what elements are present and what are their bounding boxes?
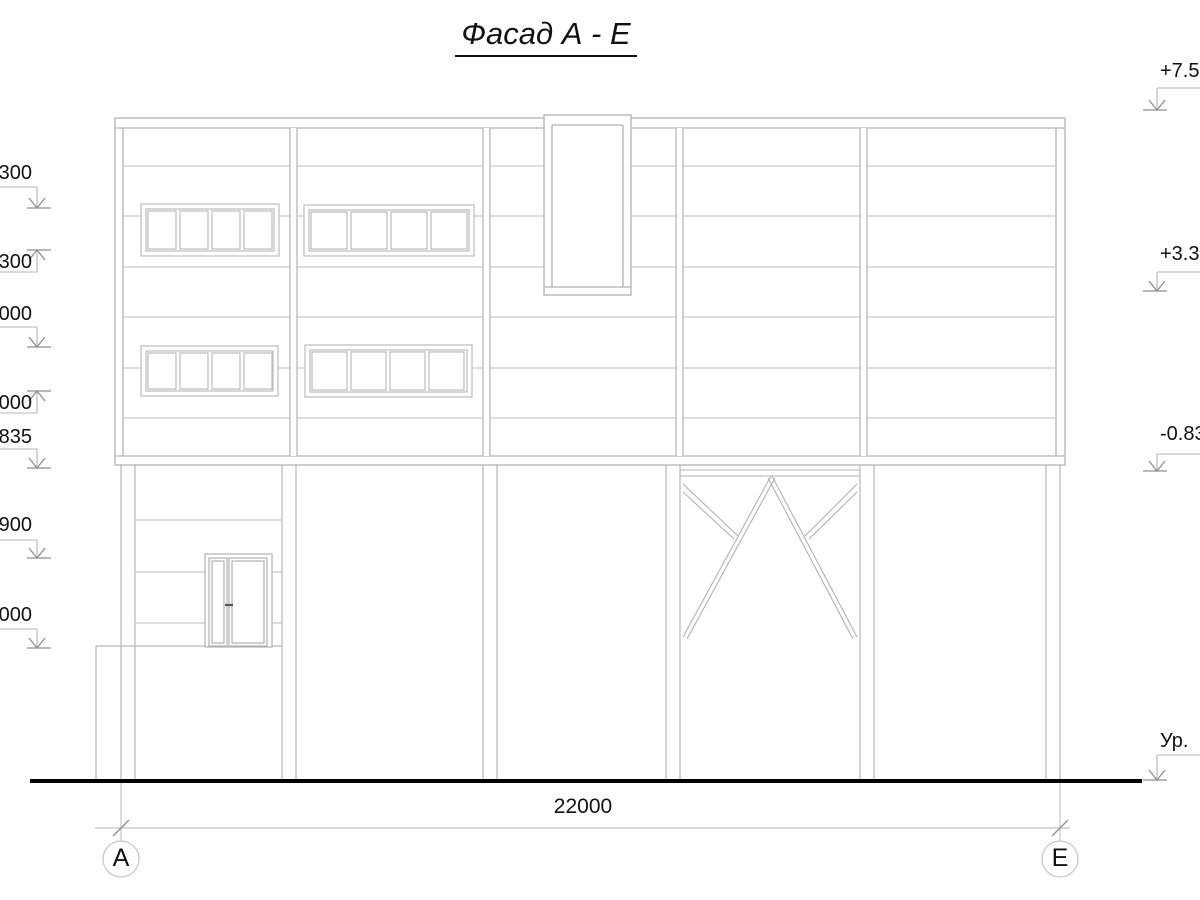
elevation-label-left-3: 000	[0, 303, 32, 326]
elevation-label-right-3: -0.83	[1160, 423, 1200, 446]
entrance-porch	[96, 646, 282, 781]
elevation-label-left-6: .900	[0, 514, 32, 537]
axis-label-e: Е	[1040, 844, 1080, 873]
facade-linework	[0, 0, 1200, 900]
gate-bracing	[680, 470, 860, 639]
center-tower	[544, 115, 631, 295]
elevation-label-left-2: .300	[0, 251, 32, 274]
elevation-label-right-2: +3.30	[1160, 243, 1200, 266]
elevation-label-right-4: Ур.	[1160, 730, 1200, 753]
window-row2-left	[141, 346, 278, 396]
axis-label-a: А	[101, 844, 141, 873]
window-row2-right	[305, 345, 472, 397]
elevation-label-right-1: +7.50	[1160, 60, 1200, 83]
elevation-label-left-1: 300	[0, 162, 32, 185]
dimension-value: 22000	[483, 795, 683, 819]
elevation-label-left-5: .835	[0, 426, 32, 449]
window-row1-left	[141, 204, 279, 256]
elevation-label-left-7: .000	[0, 604, 32, 627]
facade-drawing-canvas: Фасад А - Е 300 .300 000 000 .835 .900 .…	[0, 0, 1200, 900]
elevation-label-left-4: 000	[0, 392, 32, 415]
window-row1-right	[304, 205, 474, 256]
drawing-title: Фасад А - Е	[346, 16, 746, 57]
entrance-door	[205, 554, 272, 647]
